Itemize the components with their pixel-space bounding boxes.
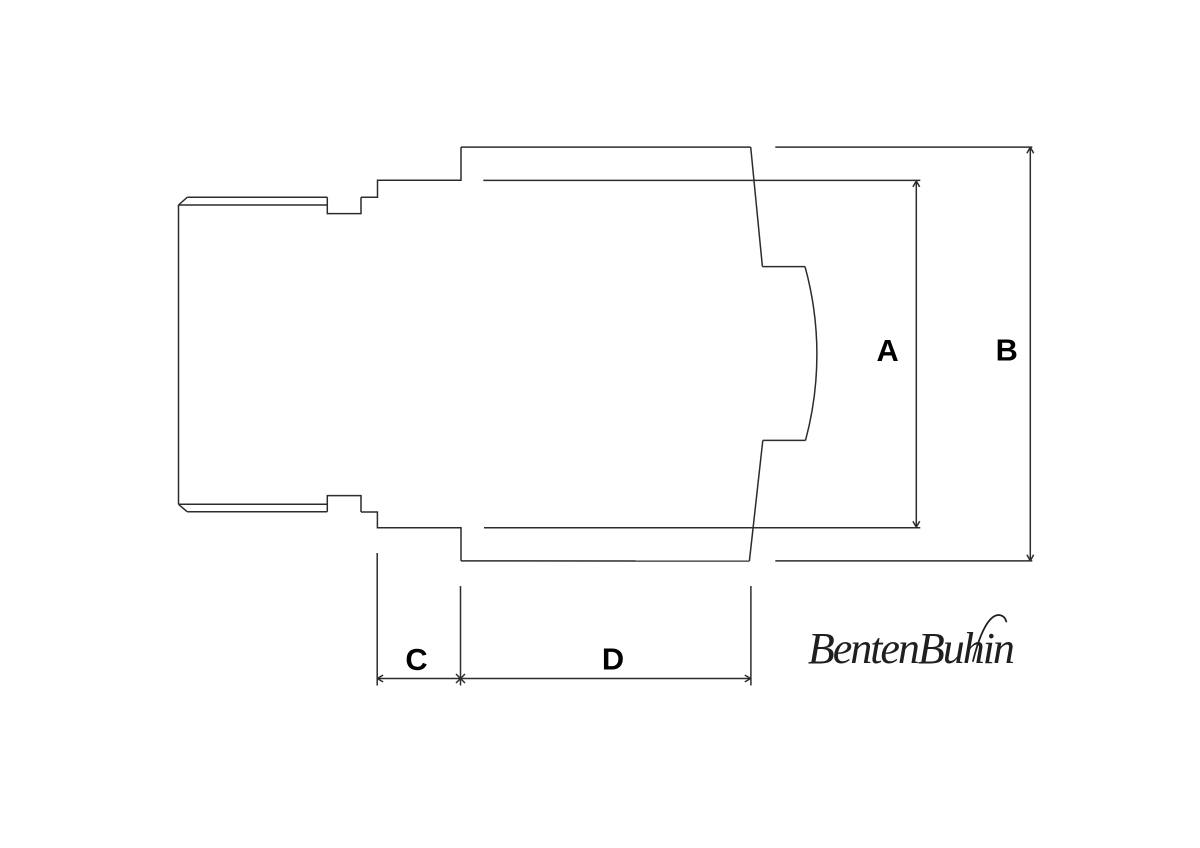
svg-text:A: A xyxy=(876,333,898,368)
svg-text:B: B xyxy=(996,333,1018,368)
svg-text:BentenBuhin: BentenBuhin xyxy=(808,624,1015,673)
svg-text:D: D xyxy=(602,642,624,677)
svg-text:C: C xyxy=(405,642,427,677)
